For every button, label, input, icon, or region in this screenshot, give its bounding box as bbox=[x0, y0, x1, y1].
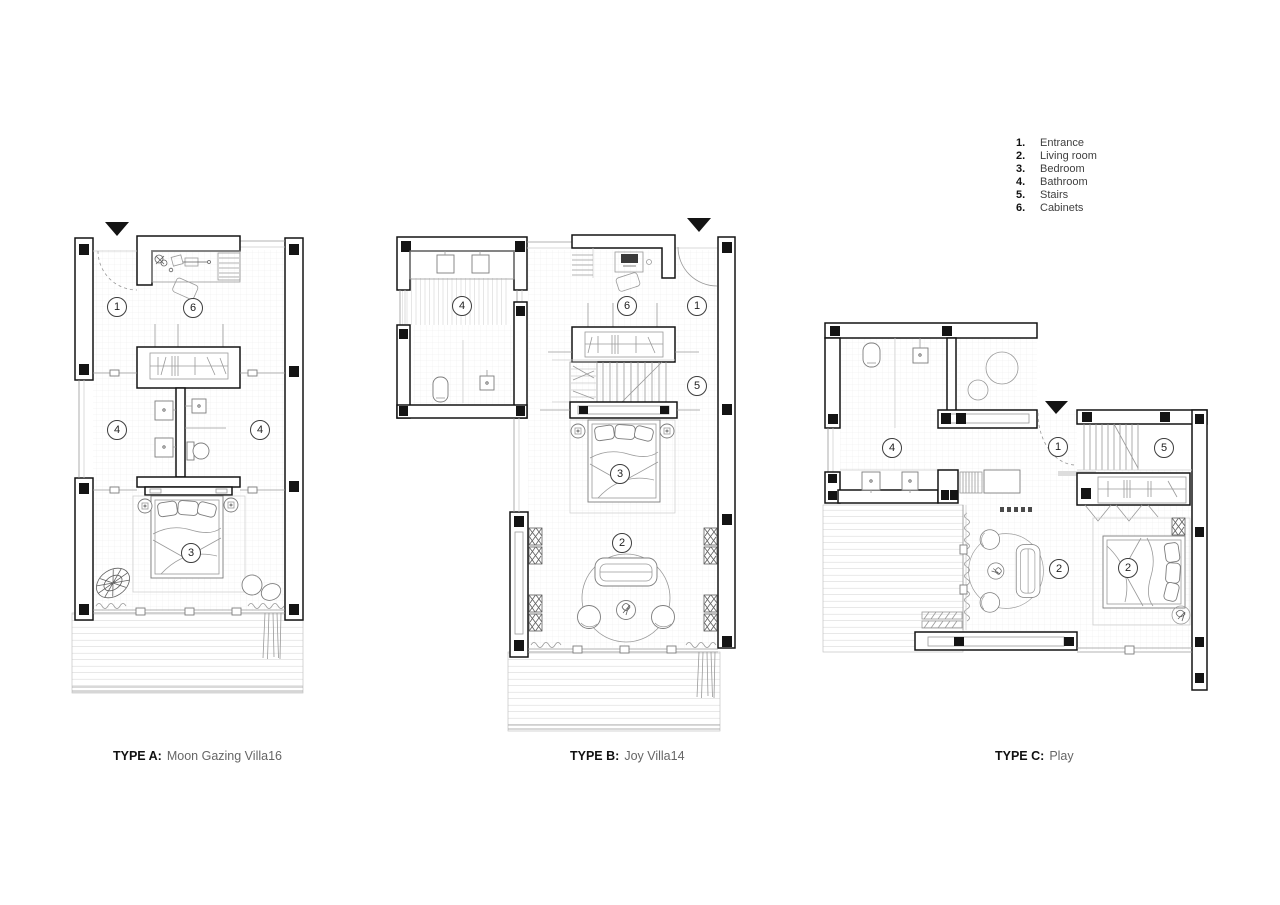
floor-plans-canvas: 1 6 4 4 3 4 6 1 5 3 2 4 1 5 2 2 bbox=[0, 0, 1280, 905]
room-label: 4 bbox=[453, 297, 472, 316]
deck bbox=[823, 505, 963, 652]
room-label: 4 bbox=[883, 439, 902, 458]
room-label: 6 bbox=[184, 299, 203, 318]
room-label: 5 bbox=[688, 377, 707, 396]
shower bbox=[192, 399, 206, 413]
legend-item-number: 4. bbox=[1016, 176, 1040, 189]
caption-prefix: TYPE B: bbox=[570, 749, 619, 763]
room-number: 3 bbox=[188, 547, 194, 559]
legend-item-label: Stairs bbox=[1040, 189, 1068, 202]
room-number: 4 bbox=[257, 424, 263, 436]
shower bbox=[913, 348, 928, 363]
caption-text: Moon Gazing Villa16 bbox=[167, 749, 282, 763]
room-label: 1 bbox=[1049, 438, 1068, 457]
legend-item: 5. Stairs bbox=[1016, 189, 1097, 202]
legend-item: 6. Cabinets bbox=[1016, 202, 1097, 215]
room-label: 4 bbox=[251, 421, 270, 440]
room-label: 2 bbox=[1119, 559, 1138, 578]
entrance-arrow-icon bbox=[687, 218, 711, 232]
deck bbox=[508, 652, 720, 731]
plan-type-b bbox=[397, 218, 735, 731]
sink bbox=[155, 438, 173, 457]
drawing-sheet: 1 6 4 4 3 4 6 1 5 3 2 4 1 5 2 2 1. Entra… bbox=[0, 0, 1280, 905]
legend: 1. Entrance 2. Living room 3. Bedroom 4.… bbox=[1016, 137, 1097, 215]
toilet bbox=[193, 443, 209, 459]
room-number: 4 bbox=[889, 442, 895, 454]
room-number: 3 bbox=[617, 468, 623, 480]
room-number: 4 bbox=[114, 424, 120, 436]
room-label: 4 bbox=[108, 421, 127, 440]
room-label: 3 bbox=[182, 544, 201, 563]
caption-type-a: TYPE A:Moon Gazing Villa16 bbox=[113, 749, 282, 763]
room-label: 1 bbox=[108, 298, 127, 317]
room-number: 1 bbox=[694, 300, 700, 312]
room-label: 6 bbox=[618, 297, 637, 316]
room-number: 2 bbox=[619, 537, 625, 549]
room-number: 5 bbox=[694, 380, 700, 392]
room-label: 5 bbox=[1155, 439, 1174, 458]
legend-item-label: Entrance bbox=[1040, 137, 1084, 150]
room-label: 2 bbox=[613, 534, 632, 553]
sink bbox=[472, 255, 489, 273]
sink bbox=[437, 255, 454, 273]
shower bbox=[480, 376, 494, 390]
caption-type-c: TYPE C:Play bbox=[995, 749, 1074, 763]
entrance-arrow-icon bbox=[105, 222, 129, 236]
caption-text: Play bbox=[1049, 749, 1073, 763]
legend-item: 4. Bathroom bbox=[1016, 176, 1097, 189]
legend-item-number: 3. bbox=[1016, 163, 1040, 176]
sink bbox=[862, 472, 880, 490]
room-number: 2 bbox=[1125, 562, 1131, 574]
room-label: 1 bbox=[688, 297, 707, 316]
legend-item: 1. Entrance bbox=[1016, 137, 1097, 150]
stair-treads bbox=[1084, 424, 1138, 470]
room-number: 4 bbox=[459, 300, 465, 312]
plan-type-a bbox=[72, 222, 303, 693]
room-label: 2 bbox=[1050, 560, 1069, 579]
legend-item: 2. Living room bbox=[1016, 150, 1097, 163]
legend-item-number: 1. bbox=[1016, 137, 1040, 150]
caption-prefix: TYPE C: bbox=[995, 749, 1044, 763]
legend-item: 3. Bedroom bbox=[1016, 163, 1097, 176]
legend-item-number: 2. bbox=[1016, 150, 1040, 163]
room-number: 2 bbox=[1056, 563, 1062, 575]
caption-text: Joy Villa14 bbox=[624, 749, 684, 763]
room-number: 1 bbox=[1055, 441, 1061, 453]
room-number: 1 bbox=[114, 301, 120, 313]
sink bbox=[902, 472, 918, 490]
legend-item-label: Living room bbox=[1040, 150, 1097, 163]
room-number: 6 bbox=[190, 302, 196, 314]
caption-prefix: TYPE A: bbox=[113, 749, 162, 763]
sink bbox=[155, 401, 173, 420]
room-number: 6 bbox=[624, 300, 630, 312]
room-number: 5 bbox=[1161, 442, 1167, 454]
legend-item-number: 5. bbox=[1016, 189, 1040, 202]
room-label: 3 bbox=[611, 465, 630, 484]
plan-type-c bbox=[823, 323, 1207, 690]
legend-item-label: Cabinets bbox=[1040, 202, 1083, 215]
legend-item-number: 6. bbox=[1016, 202, 1040, 215]
legend-item-label: Bathroom bbox=[1040, 176, 1088, 189]
legend-item-label: Bedroom bbox=[1040, 163, 1085, 176]
caption-type-b: TYPE B:Joy Villa14 bbox=[570, 749, 685, 763]
